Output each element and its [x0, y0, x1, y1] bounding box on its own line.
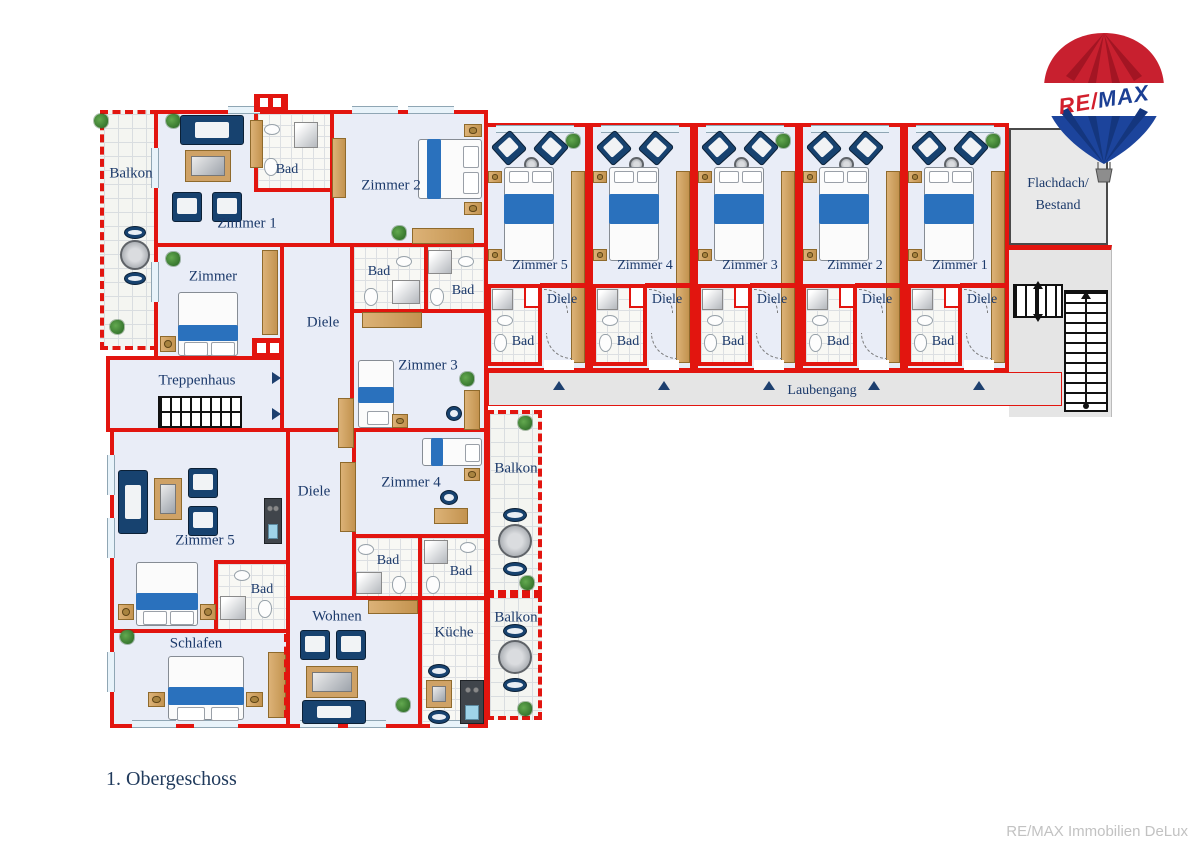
plant-icon — [986, 134, 1000, 148]
double-bed-icon — [168, 656, 244, 720]
plant-icon — [166, 252, 180, 266]
unit-bathroom — [487, 284, 542, 366]
unit-label-zimmer5: Zimmer 5 — [512, 258, 568, 274]
bath-niche — [629, 288, 643, 308]
nightstand-icon — [118, 604, 134, 620]
double-bed-icon — [418, 139, 482, 199]
room-label-bad-mid-left: Bad — [368, 264, 391, 280]
guest-unit-zimmer1 — [904, 123, 1009, 372]
armchair-icon — [300, 630, 330, 660]
plant-icon — [94, 114, 108, 128]
balloon-basket-icon — [1096, 169, 1112, 182]
toilet-icon — [392, 576, 406, 594]
table-icon — [154, 478, 182, 520]
unit-label-bad: Bad — [617, 334, 640, 350]
sofa-icon — [302, 700, 366, 724]
nightstand-icon — [148, 692, 165, 707]
wall-segment — [750, 283, 795, 288]
nightstand-icon — [464, 124, 482, 137]
double-bed-icon — [504, 167, 554, 261]
plant-icon — [520, 576, 534, 590]
armchair-icon — [188, 506, 218, 536]
stairs-up-arrow-icon — [1033, 281, 1043, 289]
nightstand-icon — [803, 249, 817, 261]
armchair-icon — [188, 468, 218, 498]
toilet-icon — [704, 334, 717, 352]
sink-icon — [264, 124, 280, 135]
bath-niche — [839, 288, 853, 308]
room-label-bad-z4-right: Bad — [450, 564, 473, 580]
remax-balloon-logo: RE/MAX — [1038, 30, 1170, 192]
balcony-table-icon — [498, 524, 532, 558]
room-label-bad-z4-left: Bad — [377, 553, 400, 569]
shower-icon — [702, 289, 723, 310]
chair-icon — [428, 664, 450, 678]
balcony-chair-icon — [124, 226, 146, 239]
window — [194, 720, 238, 728]
toilet-icon — [430, 288, 444, 306]
room-label-balkon-left: Balkon — [109, 166, 152, 183]
kitchen-table-icon — [426, 680, 452, 708]
window — [107, 518, 115, 558]
window — [107, 652, 115, 692]
single-bed-icon — [358, 360, 394, 428]
guest-unit-zimmer5 — [484, 123, 589, 372]
wardrobe-icon — [340, 462, 356, 532]
nightstand-icon — [200, 604, 216, 620]
unit-bathroom — [697, 284, 752, 366]
room-label-treppenhaus: Treppenhaus — [159, 373, 236, 390]
room-label-kueche: Küche — [434, 625, 473, 642]
guest-unit-zimmer4 — [589, 123, 694, 372]
door-swing — [861, 333, 887, 359]
sink-icon — [497, 315, 513, 326]
room-label-diele-top: Diele — [307, 315, 339, 332]
balcony-table-icon — [120, 240, 150, 270]
unit-label-diele: Diele — [547, 292, 577, 308]
wardrobe-icon — [676, 171, 690, 363]
plant-icon — [120, 630, 134, 644]
nightstand-icon — [698, 249, 712, 261]
unit-bathroom — [592, 284, 647, 366]
nightstand-icon — [392, 414, 408, 428]
nightstand-icon — [246, 692, 263, 707]
nightstand-icon — [803, 171, 817, 183]
laubengang-label: Laubengang — [787, 383, 856, 399]
wall-segment — [645, 283, 690, 288]
unit-label-diele: Diele — [862, 292, 892, 308]
door-opening — [649, 360, 679, 370]
desk-chair-icon — [440, 490, 458, 505]
room-label-zimmer2: Zimmer 2 — [361, 178, 421, 195]
nightstand-icon — [908, 171, 922, 183]
unit-label-zimmer4: Zimmer 4 — [617, 258, 673, 274]
toilet-icon — [258, 600, 272, 618]
door-opening — [859, 360, 889, 370]
stairs-start-dot — [1083, 403, 1089, 409]
kitchenette-icon — [264, 498, 282, 544]
bath-niche — [524, 288, 538, 308]
double-bed-icon — [609, 167, 659, 261]
room-label-wohnen: Wohnen — [312, 609, 362, 626]
window — [107, 455, 115, 495]
toilet-icon — [494, 334, 507, 352]
nightstand-icon — [908, 249, 922, 261]
armchair-icon — [911, 130, 948, 167]
unit-label-zimmer3: Zimmer 3 — [722, 258, 778, 274]
balcony-chair-icon — [124, 272, 146, 285]
plant-icon — [518, 702, 532, 716]
shower-icon — [807, 289, 828, 310]
armchair-icon — [336, 630, 366, 660]
bath-niche — [734, 288, 748, 308]
door-opening — [754, 360, 784, 370]
room-label-bad-top: Bad — [276, 162, 299, 178]
wardrobe-icon — [886, 171, 900, 363]
entrance-arrow-icon — [553, 381, 565, 390]
room-label-zimmer3: Zimmer 3 — [398, 358, 458, 375]
plant-icon — [518, 416, 532, 430]
nightstand-icon — [593, 171, 607, 183]
armchair-icon — [596, 130, 633, 167]
plant-icon — [776, 134, 790, 148]
unit-label-diele: Diele — [967, 292, 997, 308]
floor-title: 1. Obergeschoss — [106, 768, 237, 791]
armchair-icon — [491, 130, 528, 167]
room-label-bad-mid-right: Bad — [452, 283, 475, 299]
armchair-icon — [806, 130, 843, 167]
toilet-icon — [426, 576, 440, 594]
nightstand-icon — [593, 249, 607, 261]
unit-label-bad: Bad — [932, 334, 955, 350]
plant-icon — [566, 134, 580, 148]
double-bed-icon — [819, 167, 869, 261]
footer-watermark: RE/MAX Immobilien DeLux — [1006, 823, 1188, 840]
sink-icon — [460, 542, 476, 553]
wall-segment — [540, 283, 585, 288]
stairs-down-arrow-icon — [1033, 314, 1043, 322]
sink-icon — [396, 256, 412, 267]
wardrobe-icon — [781, 171, 795, 363]
floorplan-canvas: Balkon Zimmer 1 Bad Zimmer 2 Zimmer Diel… — [0, 0, 1200, 848]
unit-label-diele: Diele — [757, 292, 787, 308]
shower-icon — [912, 289, 933, 310]
shower-icon — [294, 122, 318, 148]
double-bed-icon — [924, 167, 974, 261]
wardrobe-icon — [571, 171, 585, 363]
unit-bathroom — [802, 284, 857, 366]
guest-unit-zimmer3 — [694, 123, 799, 372]
armchair-icon — [172, 192, 202, 222]
wardrobe-icon — [250, 120, 263, 168]
sofa-icon — [180, 115, 244, 145]
chair-icon — [428, 710, 450, 724]
shower-icon — [492, 289, 513, 310]
entrance-arrow-icon — [763, 381, 775, 390]
window — [408, 106, 454, 114]
bath-niche — [944, 288, 958, 308]
stairs-up-arrow-icon — [1081, 291, 1091, 299]
balcony-chair-icon — [503, 678, 527, 692]
plant-icon — [460, 372, 474, 386]
stove-icon — [460, 680, 484, 724]
sink-icon — [458, 256, 474, 267]
plant-icon — [392, 226, 406, 240]
room-label-diele-bottom: Diele — [298, 484, 330, 501]
unit-label-bad: Bad — [722, 334, 745, 350]
nightstand-icon — [464, 202, 482, 215]
table-icon — [306, 666, 358, 698]
entrance-arrow-icon — [868, 381, 880, 390]
window — [151, 262, 159, 302]
room-label-schlafen: Schlafen — [170, 636, 222, 653]
toilet-icon — [599, 334, 612, 352]
open-passage-dashed — [284, 634, 288, 718]
door-swing — [966, 333, 992, 359]
unit-label-bad: Bad — [827, 334, 850, 350]
double-bed-icon — [136, 562, 198, 626]
sink-icon — [358, 544, 374, 555]
window — [132, 720, 176, 728]
sink-icon — [234, 570, 250, 581]
toilet-icon — [809, 334, 822, 352]
wardrobe-icon — [338, 398, 354, 448]
room-label-balkon-top: Balkon — [494, 461, 537, 478]
wardrobe-icon — [991, 171, 1005, 363]
door-swing — [651, 333, 677, 359]
entrance-arrow-icon — [658, 381, 670, 390]
stairs-direction-line — [160, 411, 240, 413]
door-opening — [544, 360, 574, 370]
double-bed-icon — [714, 167, 764, 261]
nightstand-icon — [698, 171, 712, 183]
sideboard-icon — [368, 600, 418, 614]
wall-segment — [855, 283, 900, 288]
door-swing — [756, 333, 782, 359]
balcony-table-icon — [498, 640, 532, 674]
desk-icon — [434, 508, 468, 524]
room-label-balkon-bottom: Balkon — [494, 610, 537, 627]
single-bed-icon — [422, 438, 482, 466]
shower-icon — [392, 280, 420, 304]
shower-icon — [424, 540, 448, 564]
balcony-chair-icon — [503, 508, 527, 522]
door-swing — [546, 333, 572, 359]
flachdach-label-line2: Bestand — [1035, 198, 1080, 214]
door-arrow-icon — [272, 408, 281, 420]
nightstand-icon — [160, 336, 176, 352]
toilet-icon — [364, 288, 378, 306]
plant-icon — [110, 320, 124, 334]
sideboard-icon — [412, 228, 474, 244]
desk-icon — [464, 390, 480, 430]
room-label-zimmer5: Zimmer 5 — [175, 533, 235, 550]
shower-icon — [356, 572, 382, 594]
shower-icon — [220, 596, 246, 620]
toilet-icon — [914, 334, 927, 352]
nightstand-icon — [488, 171, 502, 183]
chimney — [252, 338, 284, 358]
room-label-zimmer: Zimmer — [189, 269, 237, 286]
unit-label-bad: Bad — [512, 334, 535, 350]
wardrobe-icon — [332, 138, 346, 198]
desk-chair-icon — [446, 406, 462, 421]
plant-icon — [166, 114, 180, 128]
wardrobe-icon — [262, 250, 278, 335]
shower-icon — [428, 250, 452, 274]
room-label-zimmer4: Zimmer 4 — [381, 475, 441, 492]
unit-label-diele: Diele — [652, 292, 682, 308]
sideboard-icon — [362, 312, 422, 328]
entrance-arrow-icon — [973, 381, 985, 390]
sink-icon — [602, 315, 618, 326]
sink-icon — [917, 315, 933, 326]
plant-icon — [396, 698, 410, 712]
window — [352, 106, 398, 114]
shower-icon — [597, 289, 618, 310]
balcony-chair-icon — [503, 562, 527, 576]
unit-bathroom — [907, 284, 962, 366]
room-label-zimmer1: Zimmer 1 — [217, 216, 277, 233]
sink-icon — [707, 315, 723, 326]
stairs-direction-line — [1037, 287, 1039, 315]
guest-unit-zimmer2 — [799, 123, 904, 372]
unit-label-zimmer1: Zimmer 1 — [932, 258, 988, 274]
nightstand-icon — [464, 468, 480, 481]
table-icon — [185, 150, 231, 182]
chimney — [254, 94, 288, 112]
door-opening — [964, 360, 994, 370]
room-label-bad-z5: Bad — [251, 582, 274, 598]
double-bed-icon — [178, 292, 238, 356]
sofa-icon — [118, 470, 148, 534]
wall-segment — [960, 283, 1005, 288]
armchair-icon — [701, 130, 738, 167]
sink-icon — [812, 315, 828, 326]
stairs-direction-line — [1085, 296, 1087, 406]
door-arrow-icon — [272, 372, 281, 384]
unit-label-zimmer2: Zimmer 2 — [827, 258, 883, 274]
nightstand-icon — [488, 249, 502, 261]
